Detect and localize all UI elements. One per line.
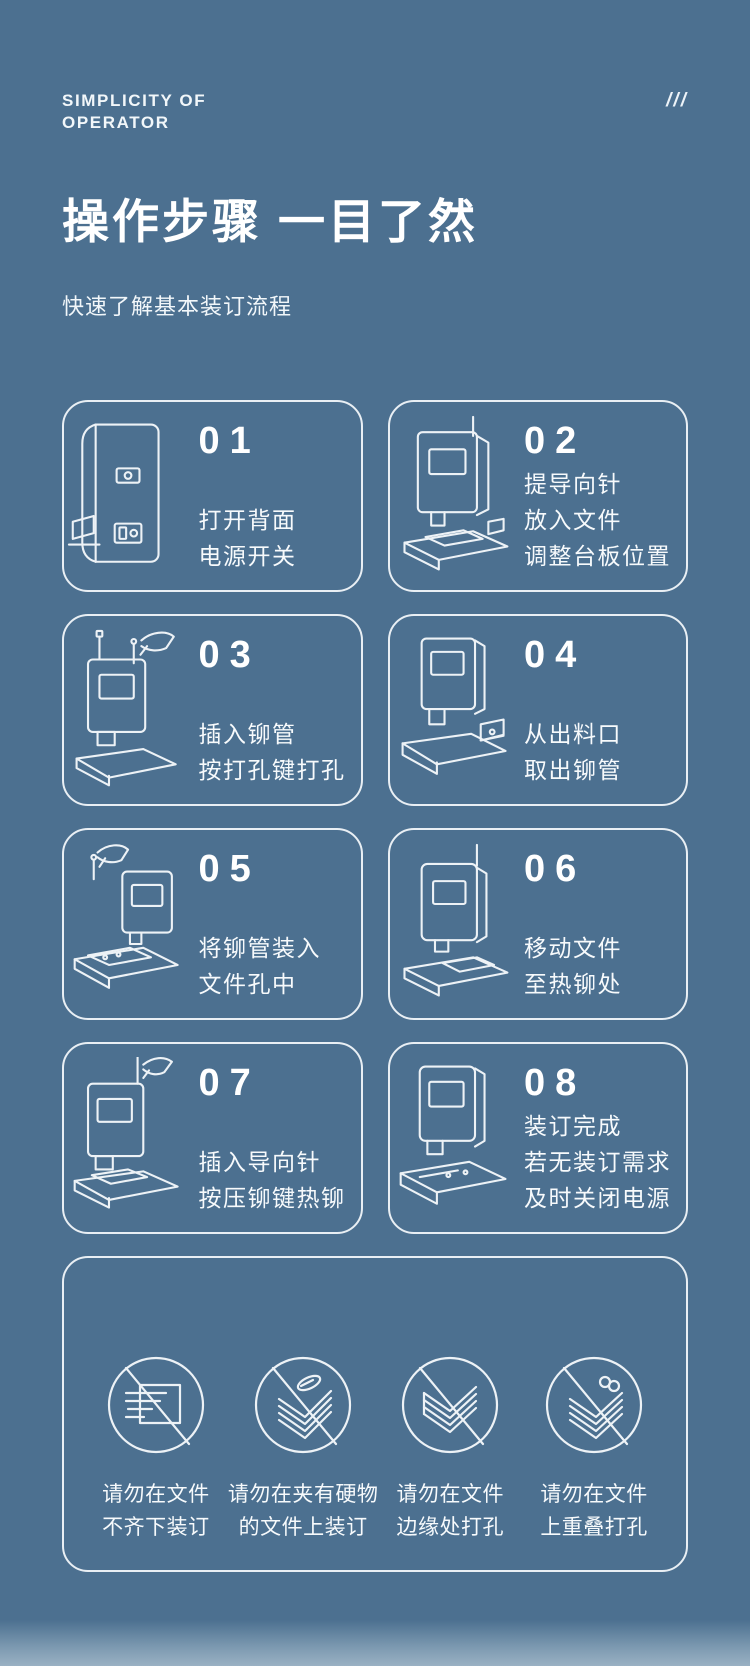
step-number: 08 — [524, 1062, 678, 1105]
step-info: 05 将铆管装入 文件孔中 — [194, 830, 360, 1018]
step-number: 07 — [198, 1062, 352, 1105]
eyebrow-text: SIMPLICITY OF OPERATOR — [62, 90, 206, 134]
warning-item: 请勿在夹有硬物 的文件上装订 — [228, 1353, 379, 1544]
warning-item: 请勿在文件 不齐下装订 — [84, 1353, 228, 1544]
warning-caption: 请勿在文件 不齐下装订 — [102, 1478, 210, 1544]
warning-caption: 请勿在文件 上重叠打孔 — [540, 1478, 648, 1544]
warning-caption-line: 请勿在文件 — [540, 1478, 648, 1511]
hand-insert-rivet-tube-icon — [64, 616, 194, 804]
step-text-line: 放入文件 — [524, 502, 678, 538]
step-card-03: 03 插入铆管 按打孔键打孔 — [62, 614, 363, 806]
step-text: 移动文件 至热铆处 — [524, 930, 678, 1002]
step-card-08: 08 装订完成 若无装订需求 及时关闭电源 — [388, 1042, 689, 1234]
step-card-05: 05 将铆管装入 文件孔中 — [62, 828, 363, 1020]
step-text-line: 及时关闭电源 — [524, 1180, 678, 1216]
step-info: 01 打开背面 电源开关 — [194, 402, 360, 590]
no-hard-objects-in-documents-icon — [251, 1353, 355, 1462]
step-text-line: 文件孔中 — [198, 966, 352, 1002]
step-text: 装订完成 若无装订需求 及时关闭电源 — [524, 1108, 678, 1216]
warning-item: 请勿在文件 边缘处打孔 — [378, 1353, 522, 1544]
operation-steps-section: SIMPLICITY OF OPERATOR /// 操作步骤 一目了然 快速了… — [0, 0, 750, 1572]
machine-back-panel-icon — [64, 402, 194, 590]
machine-outlet-tray-icon — [390, 616, 520, 804]
machine-front-platform-icon — [390, 402, 520, 590]
warning-caption-line: 请勿在文件 — [102, 1478, 210, 1511]
warning-caption-line: 请勿在文件 — [396, 1478, 504, 1511]
hand-insert-guide-pin-icon — [64, 1044, 194, 1232]
no-overlapping-punch-icon — [542, 1353, 646, 1462]
step-text-line: 打开背面 — [198, 502, 352, 538]
step-number: 01 — [198, 420, 352, 463]
step-text-line: 按打孔键打孔 — [198, 752, 352, 788]
warning-caption: 请勿在夹有硬物 的文件上装订 — [228, 1478, 379, 1544]
step-number: 05 — [198, 848, 352, 891]
step-text: 将铆管装入 文件孔中 — [198, 930, 352, 1002]
step-number: 03 — [198, 634, 352, 677]
step-text-line: 装订完成 — [524, 1108, 678, 1144]
header-row: SIMPLICITY OF OPERATOR /// — [62, 90, 688, 134]
step-text-line: 至热铆处 — [524, 966, 678, 1002]
step-info: 08 装订完成 若无装订需求 及时关闭电源 — [520, 1044, 686, 1232]
warnings-card: 请勿在文件 不齐下装订 请勿在夹有硬物 的文件上装订 — [62, 1256, 688, 1572]
step-info: 07 插入导向针 按压铆键热铆 — [194, 1044, 360, 1232]
step-number: 06 — [524, 848, 678, 891]
step-info: 02 提导向针 放入文件 调整台板位置 — [520, 402, 686, 590]
step-card-01: 01 打开背面 电源开关 — [62, 400, 363, 592]
steps-grid: 01 打开背面 电源开关 — [62, 400, 688, 1234]
step-number: 04 — [524, 634, 678, 677]
bottom-gradient-band — [0, 1620, 750, 1666]
machine-move-document-icon — [390, 830, 520, 1018]
warning-item: 请勿在文件 上重叠打孔 — [522, 1353, 666, 1544]
page-title: 操作步骤 一目了然 — [62, 196, 688, 248]
hand-place-rivet-in-document-icon — [64, 830, 194, 1018]
step-card-06: 06 移动文件 至热铆处 — [388, 828, 689, 1020]
warning-caption-line: 不齐下装订 — [102, 1511, 210, 1544]
eyebrow-line-1: SIMPLICITY OF — [62, 90, 206, 112]
step-text-line: 从出料口 — [524, 716, 678, 752]
warning-caption-line: 边缘处打孔 — [396, 1511, 504, 1544]
step-text: 提导向针 放入文件 调整台板位置 — [524, 466, 678, 574]
step-text-line: 将铆管装入 — [198, 930, 352, 966]
no-punch-at-edge-icon — [398, 1353, 502, 1462]
decorative-slashes: /// — [666, 90, 688, 112]
step-text: 从出料口 取出铆管 — [524, 716, 678, 788]
step-card-07: 07 插入导向针 按压铆键热铆 — [62, 1042, 363, 1234]
step-text-line: 调整台板位置 — [524, 538, 678, 574]
warning-caption-line: 请勿在夹有硬物 — [228, 1478, 379, 1511]
step-text-line: 提导向针 — [524, 466, 678, 502]
warning-caption-line: 上重叠打孔 — [540, 1511, 648, 1544]
step-card-04: 04 从出料口 取出铆管 — [388, 614, 689, 806]
machine-binding-done-icon — [390, 1044, 520, 1232]
step-text-line: 插入铆管 — [198, 716, 352, 752]
step-info: 04 从出料口 取出铆管 — [520, 616, 686, 804]
page-subtitle: 快速了解基本装订流程 — [62, 294, 688, 320]
step-text-line: 取出铆管 — [524, 752, 678, 788]
step-info: 06 移动文件 至热铆处 — [520, 830, 686, 1018]
step-text-line: 按压铆键热铆 — [198, 1180, 352, 1216]
eyebrow-line-2: OPERATOR — [62, 112, 206, 134]
step-number: 02 — [524, 420, 678, 463]
step-info: 03 插入铆管 按打孔键打孔 — [194, 616, 360, 804]
step-text-line: 电源开关 — [198, 538, 352, 574]
no-uneven-documents-icon — [104, 1353, 208, 1462]
step-text-line: 移动文件 — [524, 930, 678, 966]
warning-caption-line: 的文件上装订 — [228, 1511, 379, 1544]
step-text: 打开背面 电源开关 — [198, 502, 352, 574]
step-text: 插入铆管 按打孔键打孔 — [198, 716, 352, 788]
step-text: 插入导向针 按压铆键热铆 — [198, 1144, 352, 1216]
step-card-02: 02 提导向针 放入文件 调整台板位置 — [388, 400, 689, 592]
step-text-line: 插入导向针 — [198, 1144, 352, 1180]
warning-caption: 请勿在文件 边缘处打孔 — [396, 1478, 504, 1544]
step-text-line: 若无装订需求 — [524, 1144, 678, 1180]
